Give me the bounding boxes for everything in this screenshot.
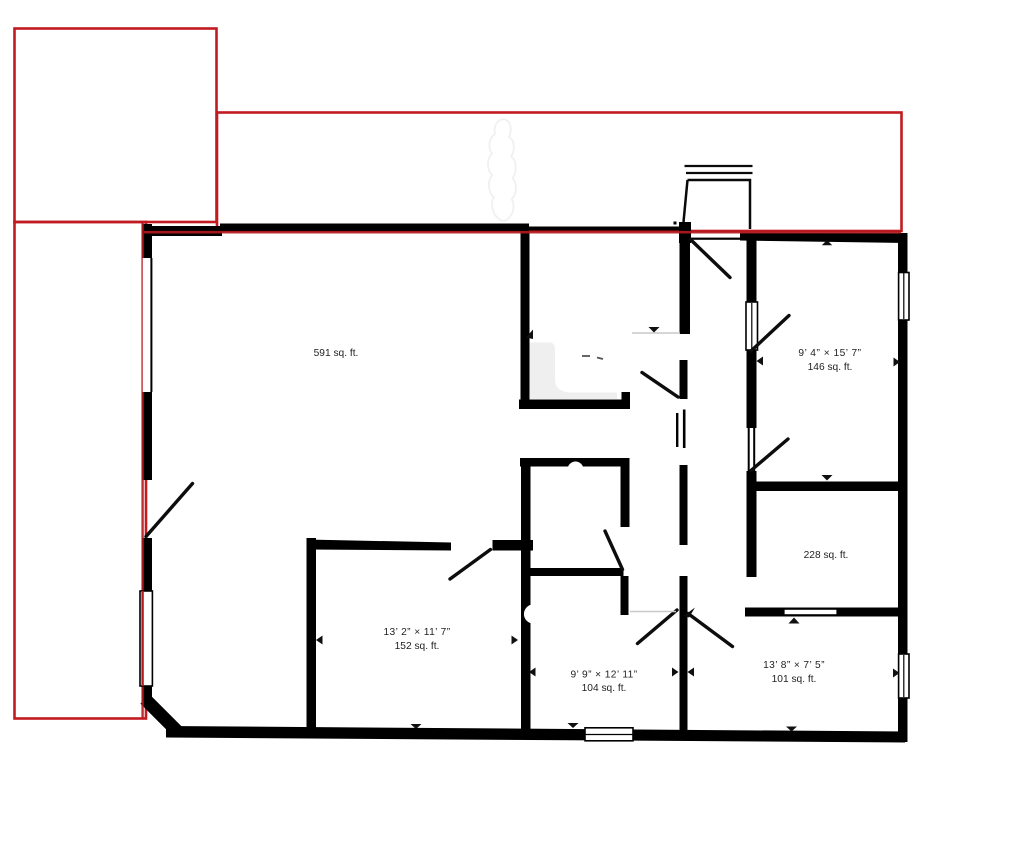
svg-text:146 sq. ft.: 146 sq. ft. — [808, 362, 853, 373]
svg-text:104 sq. ft.: 104 sq. ft. — [582, 683, 627, 694]
svg-text:591 sq. ft.: 591 sq. ft. — [314, 348, 359, 359]
svg-text:228 sq. ft.: 228 sq. ft. — [804, 550, 849, 561]
svg-text:9’ 4” × 15’ 7”: 9’ 4” × 15’ 7” — [798, 348, 861, 359]
svg-text:13’ 8” × 7’ 5”: 13’ 8” × 7’ 5” — [763, 660, 825, 671]
svg-text:13’ 2” × 11’ 7”: 13’ 2” × 11’ 7” — [383, 627, 450, 638]
svg-text:9’ 9” × 12’ 11”: 9’ 9” × 12’ 11” — [570, 670, 637, 681]
svg-text:101 sq. ft.: 101 sq. ft. — [772, 674, 817, 685]
svg-text:152 sq. ft.: 152 sq. ft. — [395, 641, 440, 652]
